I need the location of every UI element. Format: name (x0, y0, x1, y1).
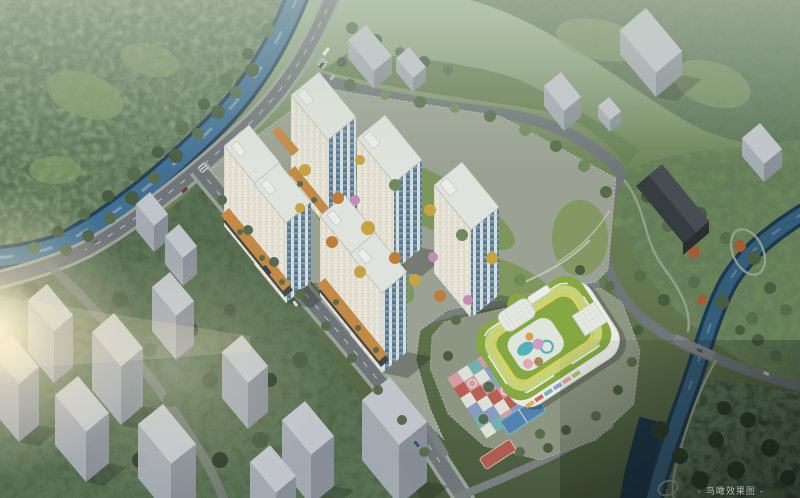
atmosphere-overlays (0, 0, 800, 498)
aerial-rendering: - 鸟瞰效果图 - (0, 0, 800, 498)
rendering-canvas (0, 0, 800, 498)
caption: - 鸟瞰效果图 - (698, 484, 764, 497)
